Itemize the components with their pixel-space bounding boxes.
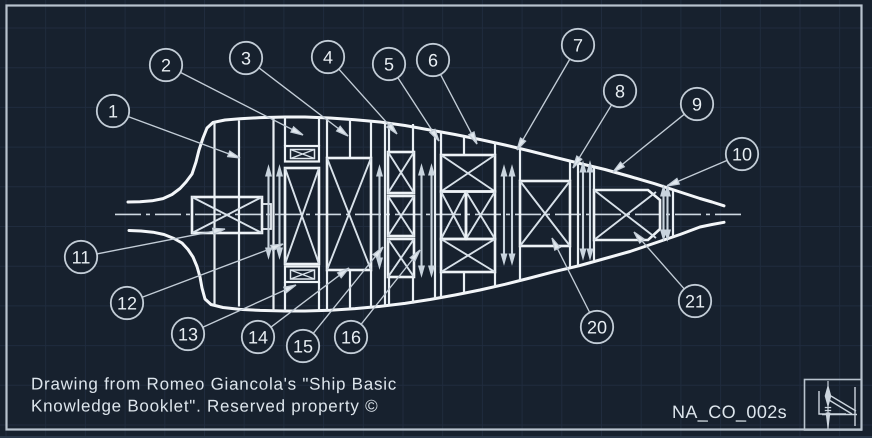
svg-text:8: 8 (615, 81, 625, 101)
svg-text:2: 2 (161, 55, 171, 75)
svg-text:10: 10 (732, 144, 752, 164)
svg-text:Knowledge Booklet". Reserved p: Knowledge Booklet". Reserved property © (31, 397, 378, 416)
svg-text:15: 15 (293, 336, 313, 356)
svg-text:7: 7 (573, 35, 583, 55)
svg-text:14: 14 (248, 327, 268, 347)
svg-text:Drawing from Romeo Giancola's: Drawing from Romeo Giancola's "Ship Basi… (31, 375, 397, 394)
svg-text:12: 12 (117, 293, 137, 313)
svg-text:5: 5 (384, 54, 394, 74)
svg-text:9: 9 (692, 94, 702, 114)
svg-text:21: 21 (685, 291, 705, 311)
svg-text:20: 20 (587, 317, 607, 337)
svg-text:NA_CO_002s: NA_CO_002s (672, 402, 787, 423)
svg-text:13: 13 (178, 324, 198, 344)
svg-text:4: 4 (323, 47, 333, 67)
svg-text:11: 11 (72, 247, 91, 267)
svg-text:3: 3 (241, 48, 251, 68)
svg-text:6: 6 (428, 50, 438, 70)
svg-text:1: 1 (108, 101, 118, 121)
svg-text:16: 16 (341, 327, 361, 347)
